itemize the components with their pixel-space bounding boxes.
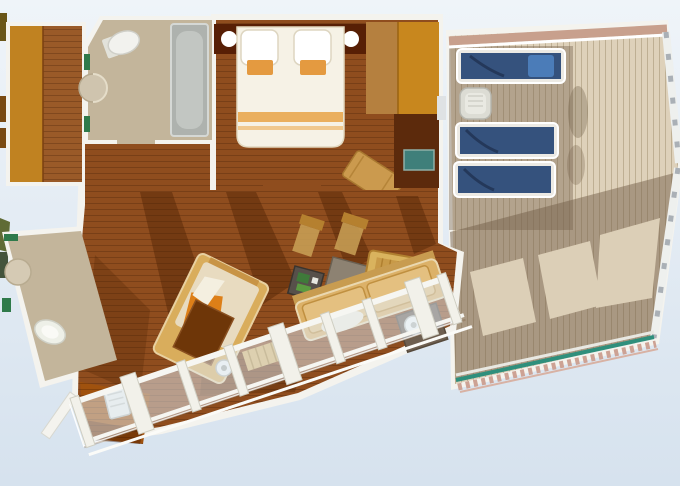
bedroom-wardrobe <box>398 22 439 114</box>
floor-plan-drawing <box>0 0 680 486</box>
sun-lounger-2 <box>456 123 558 158</box>
sun-deck <box>446 20 680 392</box>
deck-shadow-blob <box>568 86 588 138</box>
tv-screen <box>404 150 434 170</box>
green-towel <box>84 54 90 70</box>
entry-door-gap <box>437 96 446 120</box>
master-bedroom <box>214 20 446 206</box>
sun-lounger-3 <box>454 162 555 197</box>
guest-sink <box>5 259 31 285</box>
sun-lounger-1 <box>457 49 565 83</box>
pillow <box>294 30 331 65</box>
green-towel <box>4 234 18 241</box>
bed-stripe-thin <box>238 126 343 130</box>
deck-side-table <box>460 88 491 119</box>
lounger-towel <box>528 55 554 77</box>
deck-shadow-blob <box>567 145 585 185</box>
walk-in-closet <box>10 26 82 182</box>
bedside-lamp <box>221 31 237 47</box>
bathtub-inner <box>176 31 203 129</box>
bed-stripe <box>238 112 343 122</box>
master-bathroom <box>79 20 212 146</box>
pillow-orange-band <box>300 60 326 75</box>
floor-plan-canvas <box>0 0 680 486</box>
bedroom-light-floor <box>366 22 398 114</box>
green-towel <box>2 298 11 312</box>
double-bed <box>237 27 344 147</box>
bedside-lamp <box>343 31 359 47</box>
pillow <box>241 30 278 65</box>
green-towel <box>84 116 90 132</box>
closet-wardrobe <box>10 26 43 182</box>
pillow-orange-band <box>247 60 273 75</box>
